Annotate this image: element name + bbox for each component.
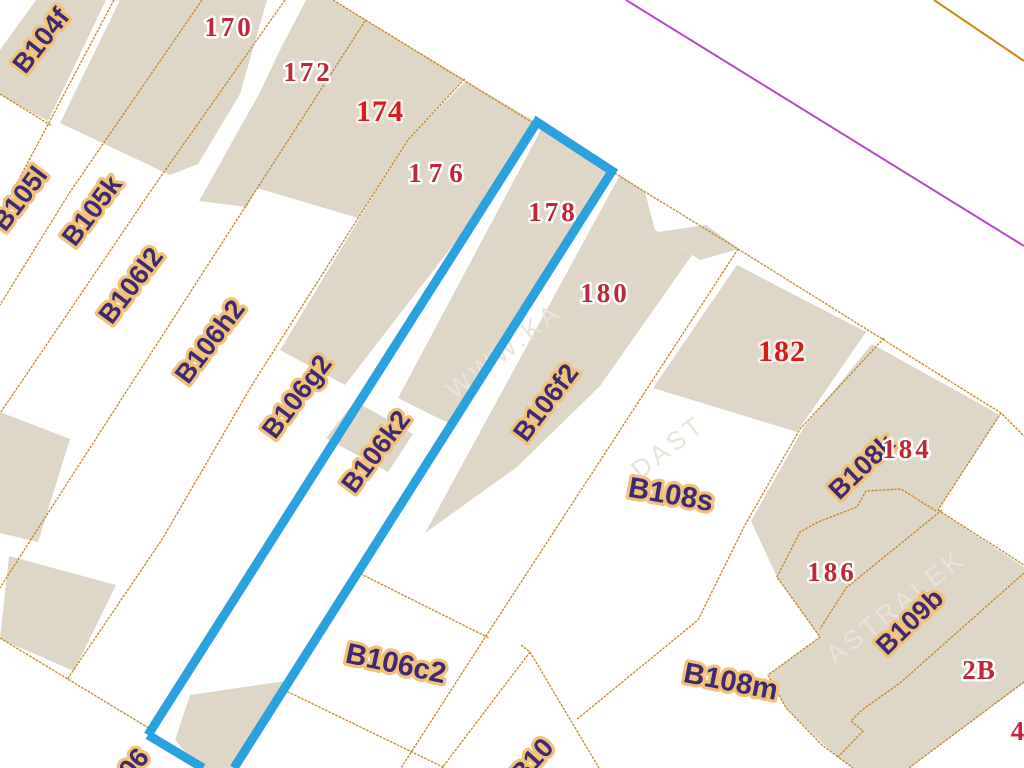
svg-text:184: 184 — [882, 434, 932, 464]
svg-text:172: 172 — [283, 57, 333, 87]
svg-text:174: 174 — [356, 95, 404, 128]
svg-text:4: 4 — [1011, 716, 1024, 746]
svg-text:186: 186 — [807, 557, 857, 587]
svg-text:170: 170 — [204, 12, 254, 42]
svg-text:178: 178 — [528, 197, 578, 227]
svg-text:176: 176 — [408, 158, 470, 188]
svg-text:182: 182 — [758, 335, 806, 368]
svg-text:180: 180 — [580, 278, 630, 308]
svg-text:2B: 2B — [962, 655, 996, 685]
